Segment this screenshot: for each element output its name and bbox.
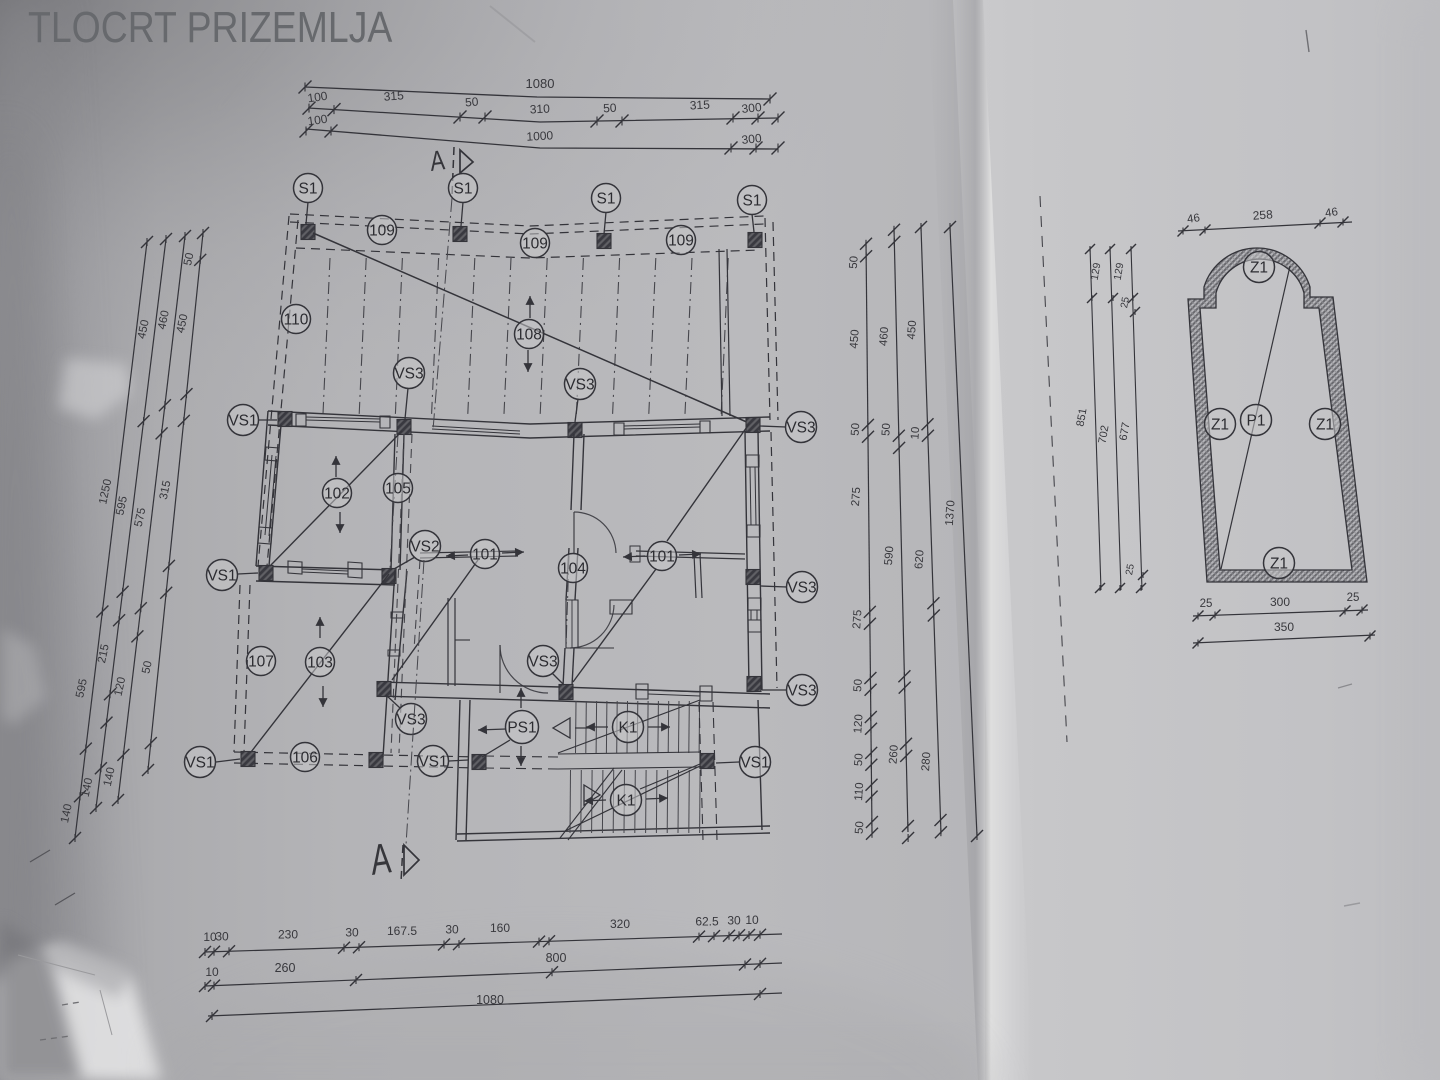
svg-text:167.5: 167.5 [387, 924, 417, 938]
svg-text:30: 30 [727, 913, 741, 927]
svg-text:Z1: Z1 [1270, 556, 1288, 573]
svg-text:Z1: Z1 [1316, 417, 1334, 434]
svg-text:50: 50 [854, 821, 867, 835]
svg-text:Z1: Z1 [1250, 260, 1268, 277]
svg-text:280: 280 [920, 752, 933, 772]
svg-text:25: 25 [1347, 592, 1360, 604]
svg-text:160: 160 [490, 921, 510, 935]
svg-text:107: 107 [248, 654, 274, 671]
svg-text:50: 50 [880, 423, 893, 437]
svg-text:K1: K1 [617, 793, 636, 810]
svg-text:101: 101 [472, 547, 498, 564]
svg-text:46: 46 [1324, 206, 1338, 220]
svg-text:110: 110 [853, 782, 866, 801]
svg-text:50: 50 [603, 101, 617, 116]
svg-text:300: 300 [741, 131, 763, 147]
svg-text:VS1: VS1 [740, 755, 769, 772]
svg-text:S1: S1 [597, 191, 616, 208]
svg-text:50: 50 [849, 423, 862, 437]
svg-text:VS3: VS3 [396, 712, 425, 729]
svg-text:108: 108 [516, 327, 542, 344]
svg-text:100: 100 [307, 112, 329, 129]
svg-text:50: 50 [852, 679, 865, 693]
svg-text:320: 320 [610, 917, 630, 931]
svg-text:VS3: VS3 [528, 654, 557, 671]
svg-text:102: 102 [324, 486, 350, 503]
svg-text:46: 46 [1186, 212, 1200, 226]
svg-text:1080: 1080 [476, 993, 504, 1007]
svg-text:10: 10 [909, 426, 922, 440]
svg-text:300: 300 [1270, 595, 1290, 609]
svg-text:258: 258 [1252, 207, 1273, 222]
svg-text:50: 50 [465, 95, 480, 110]
svg-text:62.5: 62.5 [695, 914, 719, 928]
svg-text:S1: S1 [743, 193, 762, 210]
svg-text:310: 310 [529, 101, 550, 116]
svg-text:460: 460 [878, 327, 891, 347]
svg-text:110: 110 [284, 312, 309, 329]
svg-text:800: 800 [546, 951, 567, 965]
svg-text:VS1: VS1 [185, 755, 214, 772]
svg-text:30: 30 [445, 922, 459, 936]
svg-text:1000: 1000 [526, 128, 554, 143]
svg-text:1370: 1370 [944, 500, 958, 526]
svg-text:315: 315 [689, 97, 710, 112]
svg-text:S1: S1 [454, 181, 473, 198]
svg-text:275: 275 [851, 609, 864, 629]
svg-text:10: 10 [745, 913, 759, 927]
svg-text:30: 30 [345, 925, 359, 939]
svg-text:25: 25 [1200, 598, 1213, 610]
svg-text:109: 109 [369, 223, 395, 240]
svg-text:315: 315 [383, 88, 404, 103]
svg-text:109: 109 [522, 236, 548, 253]
svg-text:VS3: VS3 [787, 580, 816, 597]
svg-text:275: 275 [850, 487, 863, 507]
svg-text:VS3: VS3 [565, 377, 594, 394]
svg-text:VS1: VS1 [228, 413, 257, 430]
svg-text:105: 105 [385, 481, 411, 498]
svg-text:P1: P1 [1247, 413, 1266, 430]
svg-text:300: 300 [741, 100, 763, 116]
svg-text:620: 620 [913, 549, 926, 569]
svg-text:120: 120 [852, 714, 865, 734]
svg-text:50: 50 [853, 753, 866, 767]
svg-text:S1: S1 [299, 181, 318, 198]
svg-text:1080: 1080 [526, 76, 555, 91]
svg-text:Z1: Z1 [1211, 417, 1229, 434]
svg-text:101: 101 [649, 549, 675, 566]
svg-text:260: 260 [275, 961, 296, 975]
svg-text:VS2: VS2 [410, 539, 439, 556]
svg-text:VS3: VS3 [394, 366, 423, 383]
svg-text:K1: K1 [619, 720, 638, 737]
svg-text:50: 50 [848, 256, 861, 270]
svg-text:VS1: VS1 [207, 568, 236, 585]
svg-text:PS1: PS1 [507, 720, 536, 737]
svg-text:103: 103 [307, 655, 333, 672]
svg-text:104: 104 [560, 561, 586, 578]
svg-text:260: 260 [888, 744, 901, 764]
svg-text:230: 230 [278, 927, 298, 941]
svg-text:10: 10 [205, 965, 219, 979]
svg-text:VS1: VS1 [418, 754, 447, 771]
svg-text:A: A [429, 145, 446, 178]
svg-text:106: 106 [292, 750, 318, 767]
svg-text:TLOCRT PRIZEMLJA: TLOCRT PRIZEMLJA [28, 2, 393, 52]
svg-text:350: 350 [1274, 620, 1294, 634]
svg-text:450: 450 [906, 320, 919, 340]
svg-text:30: 30 [215, 929, 229, 943]
svg-text:590: 590 [883, 546, 896, 566]
svg-text:450: 450 [848, 329, 861, 349]
svg-text:100: 100 [307, 89, 329, 106]
svg-text:VS3: VS3 [786, 420, 815, 437]
svg-text:109: 109 [668, 233, 694, 250]
svg-text:A: A [369, 833, 393, 884]
svg-text:VS3: VS3 [787, 683, 816, 700]
